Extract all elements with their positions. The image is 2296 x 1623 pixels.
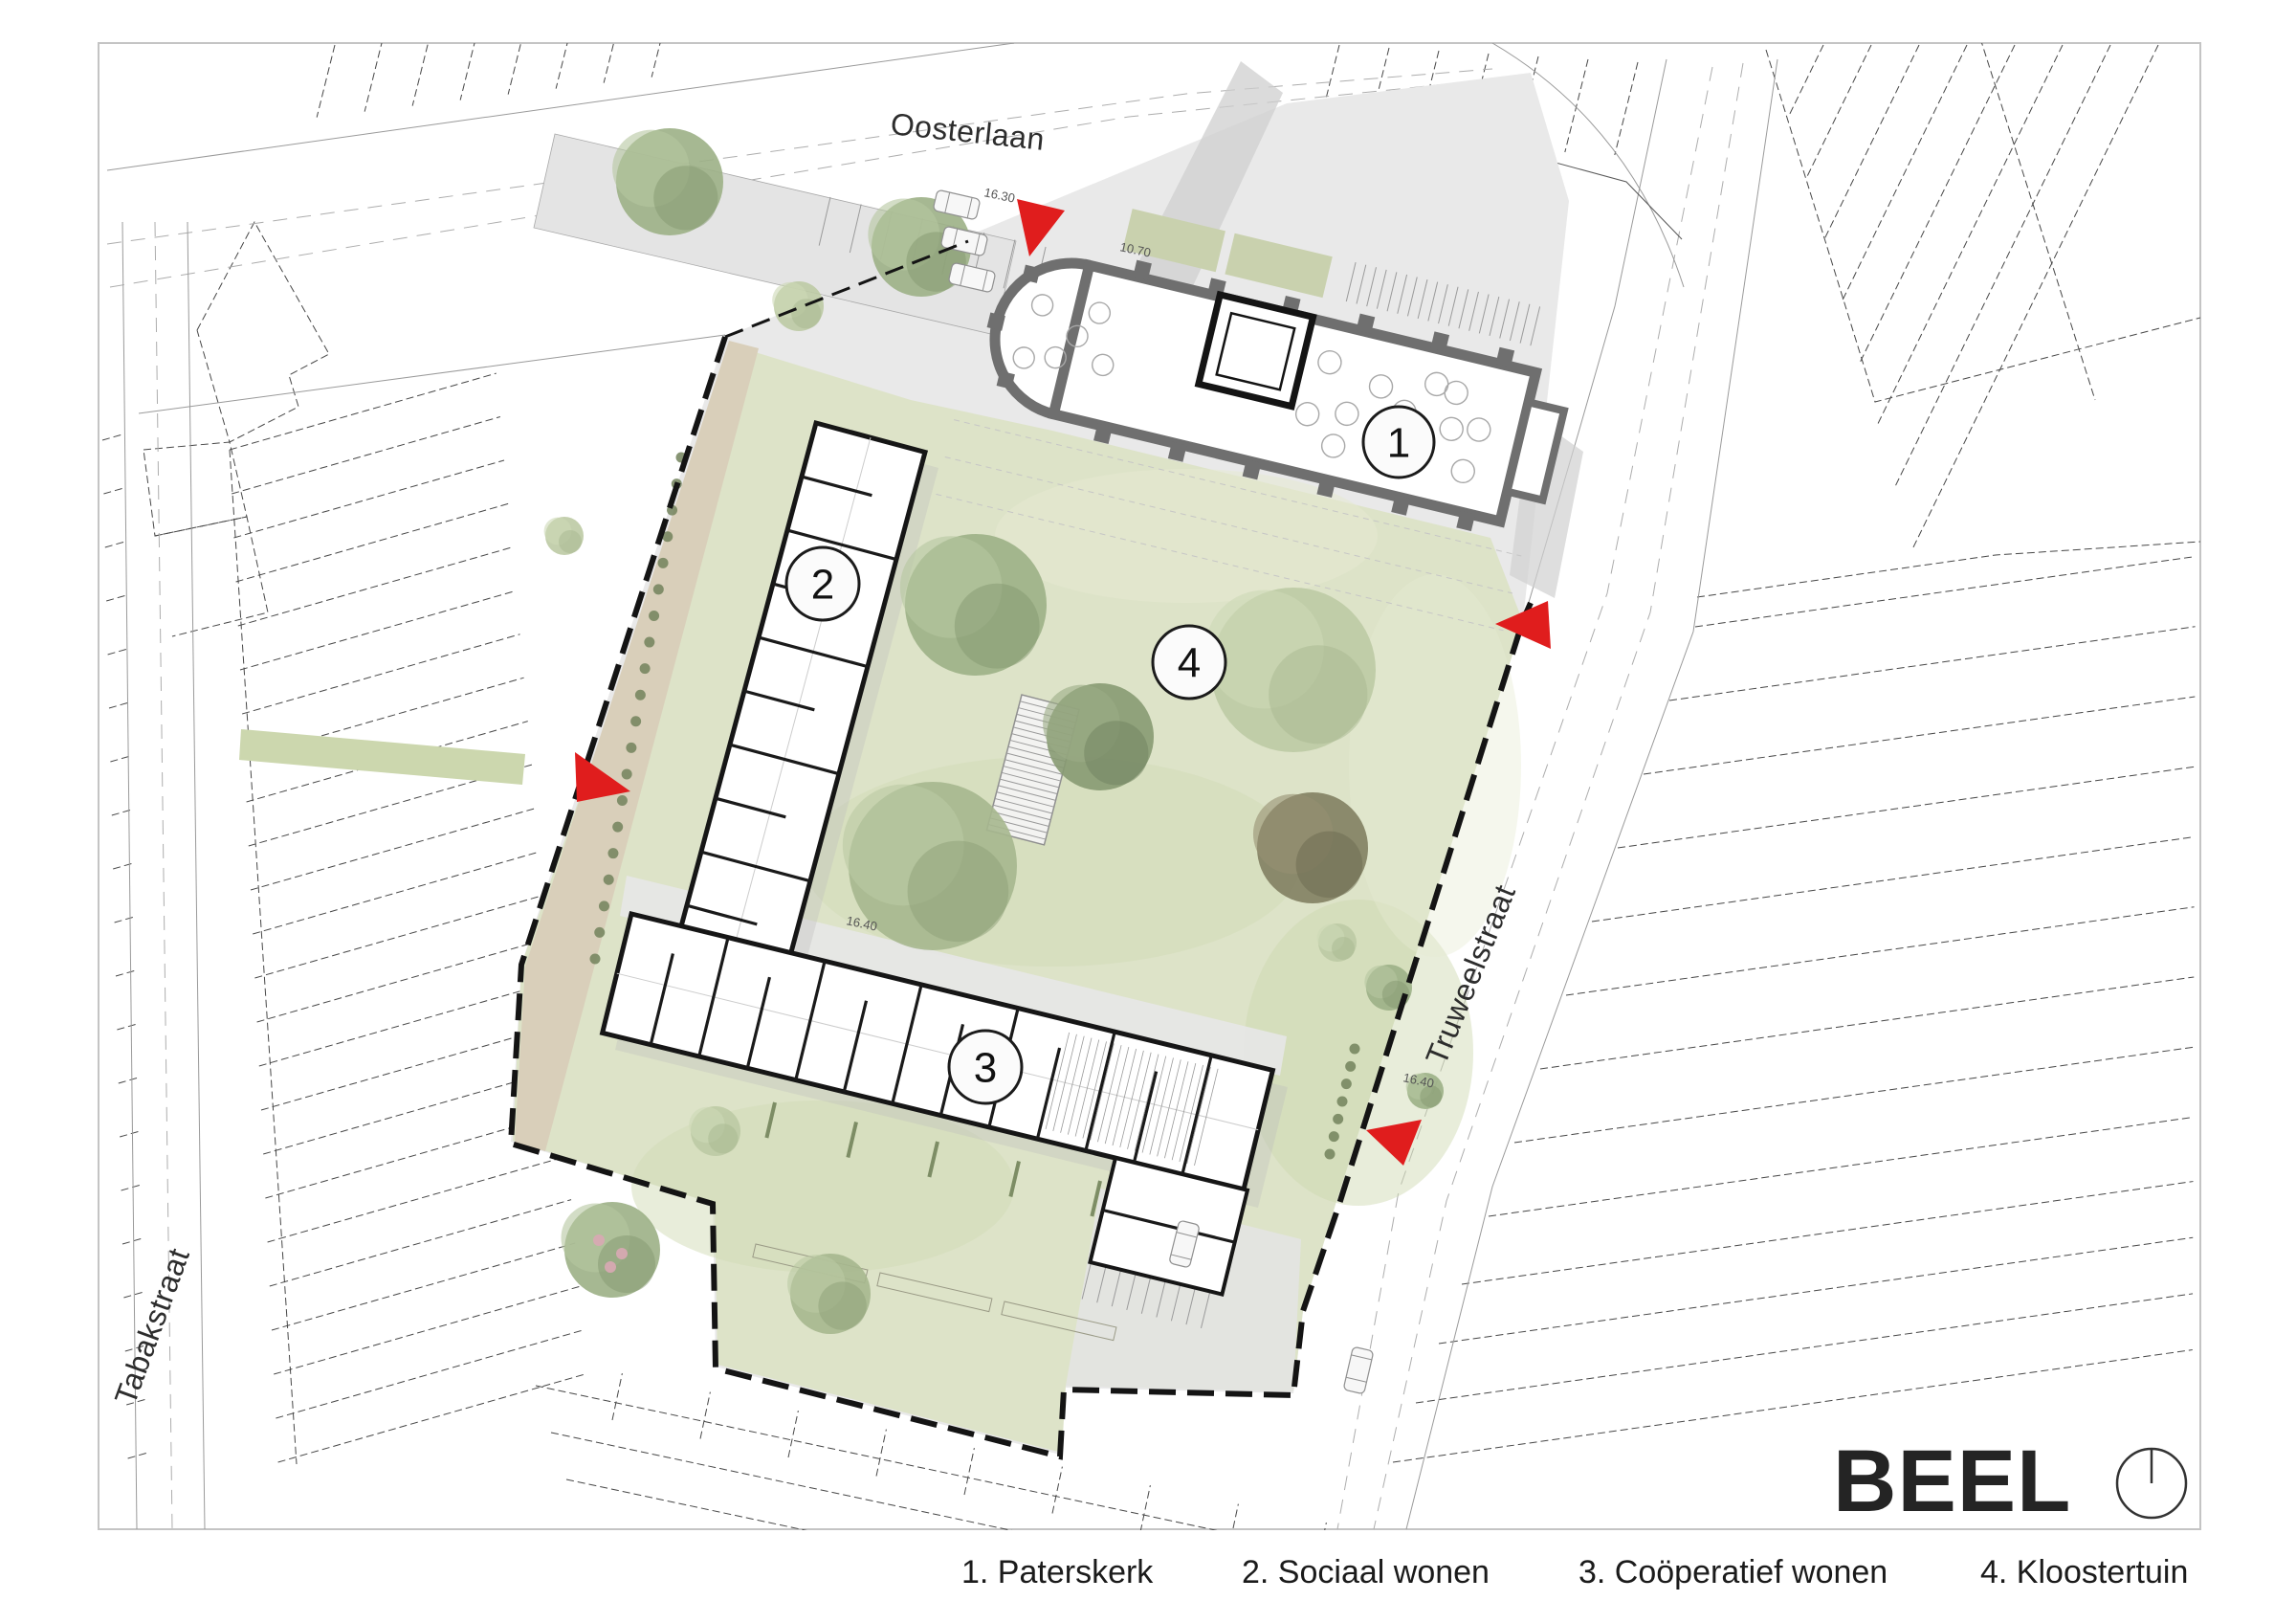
site-plan-drawing: 1 2 3 4 Oosterlaan Tabakstraat Truweelst…: [0, 0, 2296, 1623]
marker-1-paterskerk: 1: [1363, 407, 1434, 478]
street-label-oosterlaan: Oosterlaan: [889, 106, 1046, 157]
marker-4-kloostertuin: 4: [1153, 626, 1225, 699]
svg-text:3: 3: [974, 1044, 997, 1091]
level-annotation: 16.30: [982, 185, 1016, 205]
svg-text:1: 1: [1387, 419, 1410, 466]
marker-2-sociaal-wonen: 2: [786, 547, 859, 620]
legend-item-cooperatief-wonen: 3. Coöperatief wonen: [1578, 1554, 1888, 1591]
legend-item-kloostertuin: 4. Kloostertuin: [1980, 1554, 2188, 1591]
legend-item-paterskerk: 1. Paterskerk: [961, 1554, 1153, 1591]
legend-item-sociaal-wonen: 2. Sociaal wonen: [1242, 1554, 1490, 1591]
svg-text:4: 4: [1178, 639, 1201, 686]
svg-text:2: 2: [811, 561, 834, 608]
north-compass-icon: [2111, 1443, 2192, 1523]
marker-3-cooperatief-wonen: 3: [949, 1031, 1022, 1103]
logo-beel: BEEL: [1833, 1432, 2071, 1532]
site-plan-page: 1 2 3 4 Oosterlaan Tabakstraat Truweelst…: [0, 0, 2296, 1623]
legend: 1. Paterskerk 2. Sociaal wonen 3. Coöper…: [0, 1554, 2296, 1602]
car-outline: [1343, 1346, 1374, 1394]
green-access-strip: [239, 729, 525, 785]
church-tower: [1199, 295, 1314, 407]
street-label-tabakstraat: Tabakstraat: [108, 1243, 196, 1409]
